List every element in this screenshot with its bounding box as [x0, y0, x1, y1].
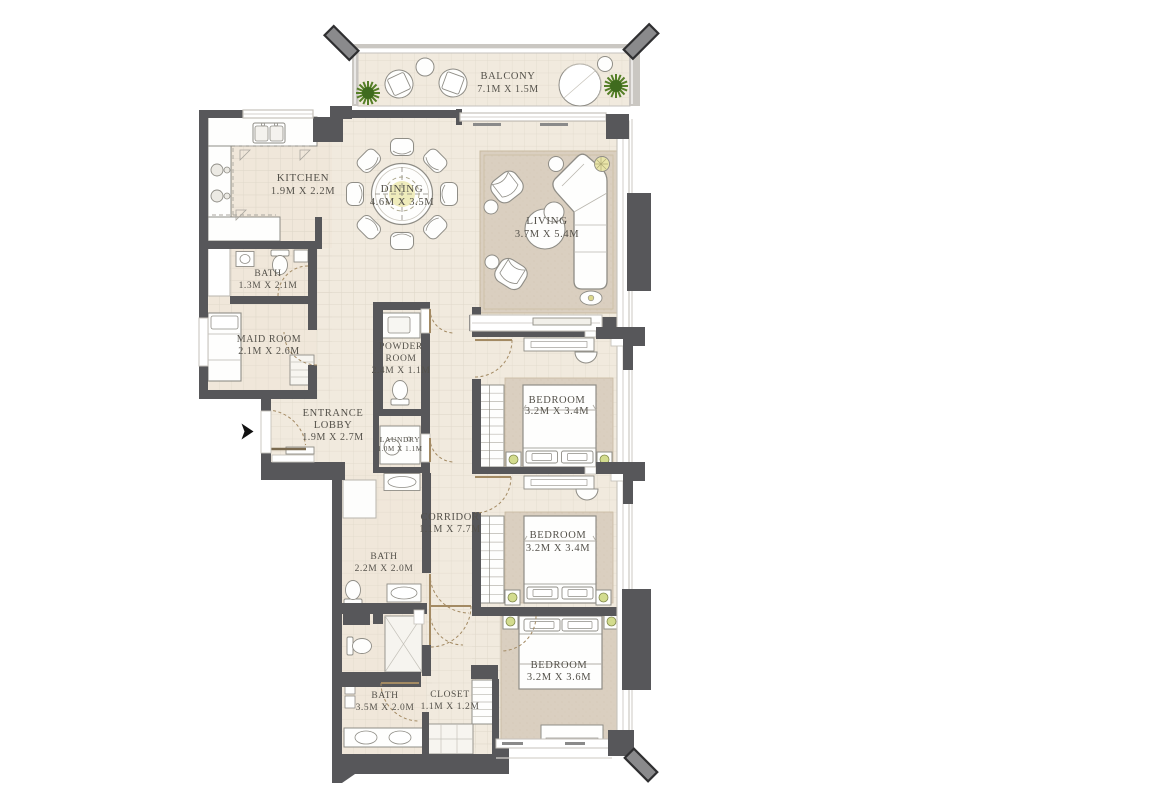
svg-text:POWDER: POWDER — [379, 342, 423, 352]
svg-text:BEDROOM: BEDROOM — [530, 530, 587, 541]
svg-text:LIVING: LIVING — [526, 215, 567, 227]
svg-text:3.2M X 3.4M: 3.2M X 3.4M — [526, 543, 590, 554]
svg-text:2.2M X 2.0M: 2.2M X 2.0M — [355, 564, 414, 574]
svg-text:CLOSET: CLOSET — [430, 690, 470, 700]
svg-text:KITCHEN: KITCHEN — [277, 172, 329, 184]
svg-text:BEDROOM: BEDROOM — [529, 395, 586, 406]
svg-text:2.1M X 2.6M: 2.1M X 2.6M — [238, 346, 300, 357]
svg-text:3.2M X 3.4M: 3.2M X 3.4M — [525, 406, 589, 417]
svg-text:CORRIDOR: CORRIDOR — [420, 512, 479, 523]
svg-text:BATH: BATH — [371, 691, 398, 701]
svg-text:2.4M X 1.1M: 2.4M X 1.1M — [372, 366, 431, 376]
svg-text:DINING: DINING — [381, 183, 424, 195]
svg-text:LAUNDRY: LAUNDRY — [380, 435, 420, 444]
svg-text:MAID ROOM: MAID ROOM — [237, 334, 302, 345]
svg-text:ROOM: ROOM — [386, 354, 417, 364]
svg-text:1.0M X 1.1M: 1.0M X 1.1M — [377, 445, 422, 453]
svg-text:ENTRANCE: ENTRANCE — [303, 408, 364, 419]
svg-text:BALCONY: BALCONY — [481, 71, 536, 82]
svg-text:1.9M X 2.2M: 1.9M X 2.2M — [271, 186, 335, 197]
svg-text:3.5M X 2.0M: 3.5M X 2.0M — [356, 703, 415, 713]
svg-text:3.7M X 5.4M: 3.7M X 5.4M — [515, 229, 579, 240]
svg-text:LOBBY: LOBBY — [314, 420, 353, 431]
svg-text:7.1M X 1.5M: 7.1M X 1.5M — [477, 84, 539, 95]
svg-text:BEDROOM: BEDROOM — [531, 660, 588, 671]
svg-text:3.2M X 3.6M: 3.2M X 3.6M — [527, 672, 591, 683]
svg-text:1.1M X 7.7M: 1.1M X 7.7M — [419, 524, 481, 535]
svg-text:1.9M X 2.7M: 1.9M X 2.7M — [302, 432, 364, 443]
svg-text:1.3M X 2.1M: 1.3M X 2.1M — [239, 281, 298, 291]
svg-text:BATH: BATH — [254, 269, 281, 279]
svg-text:4.6M X 3.5M: 4.6M X 3.5M — [370, 197, 434, 208]
svg-text:BATH: BATH — [370, 552, 397, 562]
svg-text:1.1M X 1.2M: 1.1M X 1.2M — [421, 702, 480, 712]
